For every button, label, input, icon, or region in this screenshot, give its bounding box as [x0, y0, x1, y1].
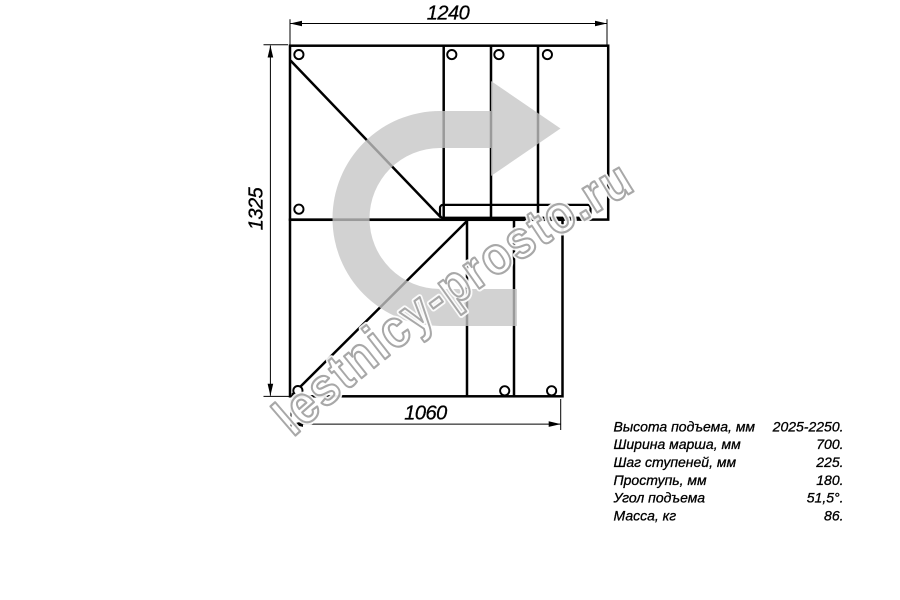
svg-text:700.: 700.: [816, 436, 843, 452]
svg-text:2025-2250.: 2025-2250.: [772, 418, 844, 434]
svg-text:Угол подъема: Угол подъема: [613, 490, 706, 506]
svg-text:86.: 86.: [824, 508, 843, 524]
svg-text:Масса, кг: Масса, кг: [614, 508, 677, 524]
svg-text:51,5°.: 51,5°.: [807, 490, 844, 506]
svg-text:225.: 225.: [815, 454, 843, 470]
svg-text:Ширина марша, мм: Ширина марша, мм: [614, 436, 742, 452]
svg-text:1240: 1240: [427, 3, 470, 25]
svg-text:Проступь, мм: Проступь, мм: [614, 472, 708, 488]
svg-text:1060: 1060: [404, 402, 447, 424]
svg-text:Шаг ступеней, мм: Шаг ступеней, мм: [614, 454, 737, 470]
svg-text:Высота подъема, мм: Высота подъема, мм: [614, 418, 756, 434]
svg-text:180.: 180.: [816, 472, 843, 488]
svg-text:1325: 1325: [246, 186, 268, 230]
